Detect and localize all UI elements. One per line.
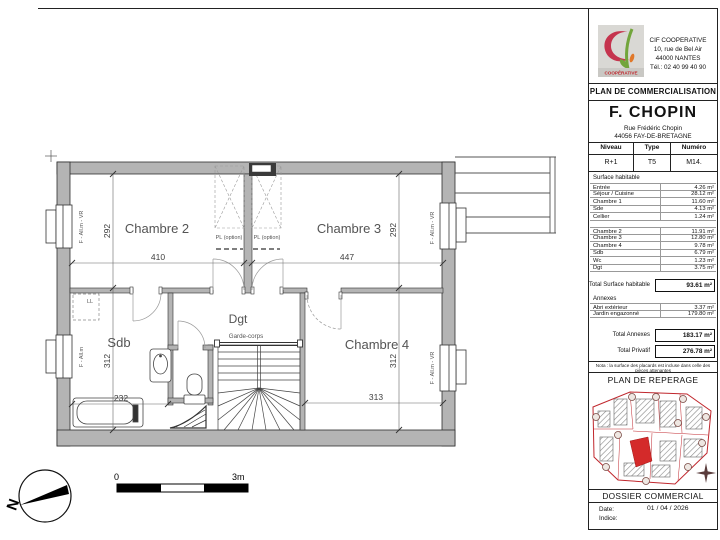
washbasin [150, 349, 171, 382]
room-label-dgt: Dgt [229, 312, 248, 326]
washing-machine-box [73, 294, 99, 320]
table-row: Abri extérieur3.37 m² [590, 303, 716, 311]
company-phone: Tél.: 02 40 99 40 90 [641, 63, 715, 72]
company-name: CIF COOPERATIVE [641, 36, 715, 45]
room-label-chambre3: Chambre 3 [317, 221, 381, 236]
dim-sdb-height: 312 [102, 354, 112, 368]
document-title: PLAN DE COMMERCIALISATION [589, 87, 717, 96]
project-name: F. CHOPIN [589, 104, 717, 122]
unit-col-type: Type [633, 142, 671, 154]
window-label: F - All.m - VR [430, 352, 436, 385]
dim-chambre4-height: 312 [388, 354, 398, 368]
table-row: Chambre 312.80 m² [590, 235, 716, 243]
closet-label: PL (option) [254, 235, 281, 241]
scale-bar: 0 3m [114, 472, 248, 492]
duct [249, 163, 276, 176]
window-label: F - All.m - VR [79, 211, 85, 244]
project-street: Rue Frédéric Chopin [589, 125, 717, 132]
dim-chambre2-height: 292 [102, 224, 112, 238]
svg-text:3m: 3m [232, 472, 245, 482]
table-row: Entrée4.26 m² [590, 183, 716, 191]
table-row: Sdb6.79 m² [590, 250, 716, 258]
svg-text:0: 0 [114, 472, 119, 482]
closet-label: PL (option) [216, 235, 243, 241]
table-row: Chambre 111.60 m² [590, 198, 716, 206]
dim-chambre3-width: 447 [340, 252, 354, 262]
total-annexes-row: Total Annexes 183.17 m² [589, 329, 716, 342]
unit-niveau: R+1 [589, 154, 633, 171]
table-row: Jardin engazonné179.80 m² [590, 311, 716, 319]
total-habitable-label: Total Surface habitable [589, 282, 650, 288]
surface-table-1: Entrée4.26 m² Séjour / Cuisine28.12 m² C… [590, 183, 716, 221]
title-block: COOPÉRATIVE CIF COOPERATIVE 10, rue de B… [588, 8, 718, 530]
room-label-chambre4: Chambre 4 [345, 337, 409, 352]
annexes-table: Abri extérieur3.37 m² Jardin engazonné17… [590, 303, 716, 318]
site-map [590, 387, 716, 489]
door-jambs [130, 287, 342, 299]
room-label-chambre2: Chambre 2 [125, 221, 189, 236]
date-label: Date: [599, 506, 614, 513]
table-row: Wc1.23 m² [590, 257, 716, 265]
hatched-area [170, 406, 206, 428]
dim-chambre2-width: 410 [151, 252, 165, 262]
dossier-title: DOSSIER COMMERCIAL [589, 491, 717, 501]
total-privatif-label: Total Privatif [617, 348, 650, 354]
toilet [184, 374, 205, 404]
table-row: Chambre 211.91 m² [590, 227, 716, 235]
washing-machine-label: LL [87, 299, 93, 305]
corner-tick [45, 150, 57, 162]
project-city: 44056 FAY-DE-BRETAGNE [589, 133, 717, 140]
table-row: Sde4.13 m² [590, 206, 716, 214]
date-value: 01 / 04 / 2026 [647, 505, 689, 512]
total-annexes-label: Total Annexes [613, 332, 650, 338]
interior-walls [70, 174, 443, 430]
reperage-title: PLAN DE REPERAGE [589, 375, 717, 385]
table-row: Séjour / Cuisine28.12 m² [590, 191, 716, 199]
svg-text:COOPÉRATIVE: COOPÉRATIVE [604, 69, 637, 76]
dim-sdb-width: 232 [114, 393, 128, 403]
map-compass-icon [696, 463, 716, 483]
company-city: 44000 NANTES [641, 54, 715, 63]
svg-text:N: N [4, 497, 24, 513]
awning-lines [455, 157, 556, 233]
window-label: F - All.m [79, 347, 85, 368]
annexes-label: Annexes [593, 296, 616, 302]
plan-sheet: F - All.m - VR F - All.m F - All.m - VR … [0, 0, 720, 540]
table-row: Chambre 49.78 m² [590, 242, 716, 250]
indice-label: Indice: [599, 515, 618, 522]
staircase [218, 345, 300, 430]
table-row: Cellier1.24 m² [590, 213, 716, 221]
surface-section-label: Surface habitable [593, 175, 640, 181]
room-label-sdb: Sdb [107, 335, 130, 350]
guard-rail-label: Garde-corps [229, 333, 263, 340]
dim-chambre3-height: 292 [388, 223, 398, 237]
dim-chambre4-width: 313 [369, 392, 383, 402]
unit-table: Niveau Type Numéro R+1 T5 M14. [589, 142, 717, 171]
total-privatif-row: Total Privatif 276.78 m² [589, 345, 716, 358]
north-arrow-icon: N [4, 470, 71, 522]
unit-col-niveau: Niveau [589, 142, 633, 154]
total-privatif-value: 276.78 m² [655, 345, 715, 358]
company-street: 10, rue de Bel Air [641, 45, 715, 54]
company-logo: COOPÉRATIVE [598, 25, 644, 77]
surface-table-2: Chambre 211.91 m² Chambre 312.80 m² Cham… [590, 227, 716, 272]
company-address: CIF COOPERATIVE 10, rue de Bel Air 44000… [641, 36, 715, 72]
highlighted-unit [630, 437, 652, 467]
bathtub [73, 398, 143, 427]
unit-numero: M14. [671, 154, 717, 171]
total-annexes-value: 183.17 m² [655, 329, 715, 342]
total-habitable-value: 93.61 m² [655, 279, 715, 292]
window-label: F - All.m - VR [430, 212, 436, 245]
unit-type: T5 [633, 154, 671, 171]
guard-rail [215, 340, 303, 347]
total-habitable-row: Total Surface habitable 93.61 m² [589, 279, 716, 292]
unit-col-numero: Numéro [671, 142, 717, 154]
table-row: Dgt3.75 m² [590, 265, 716, 273]
